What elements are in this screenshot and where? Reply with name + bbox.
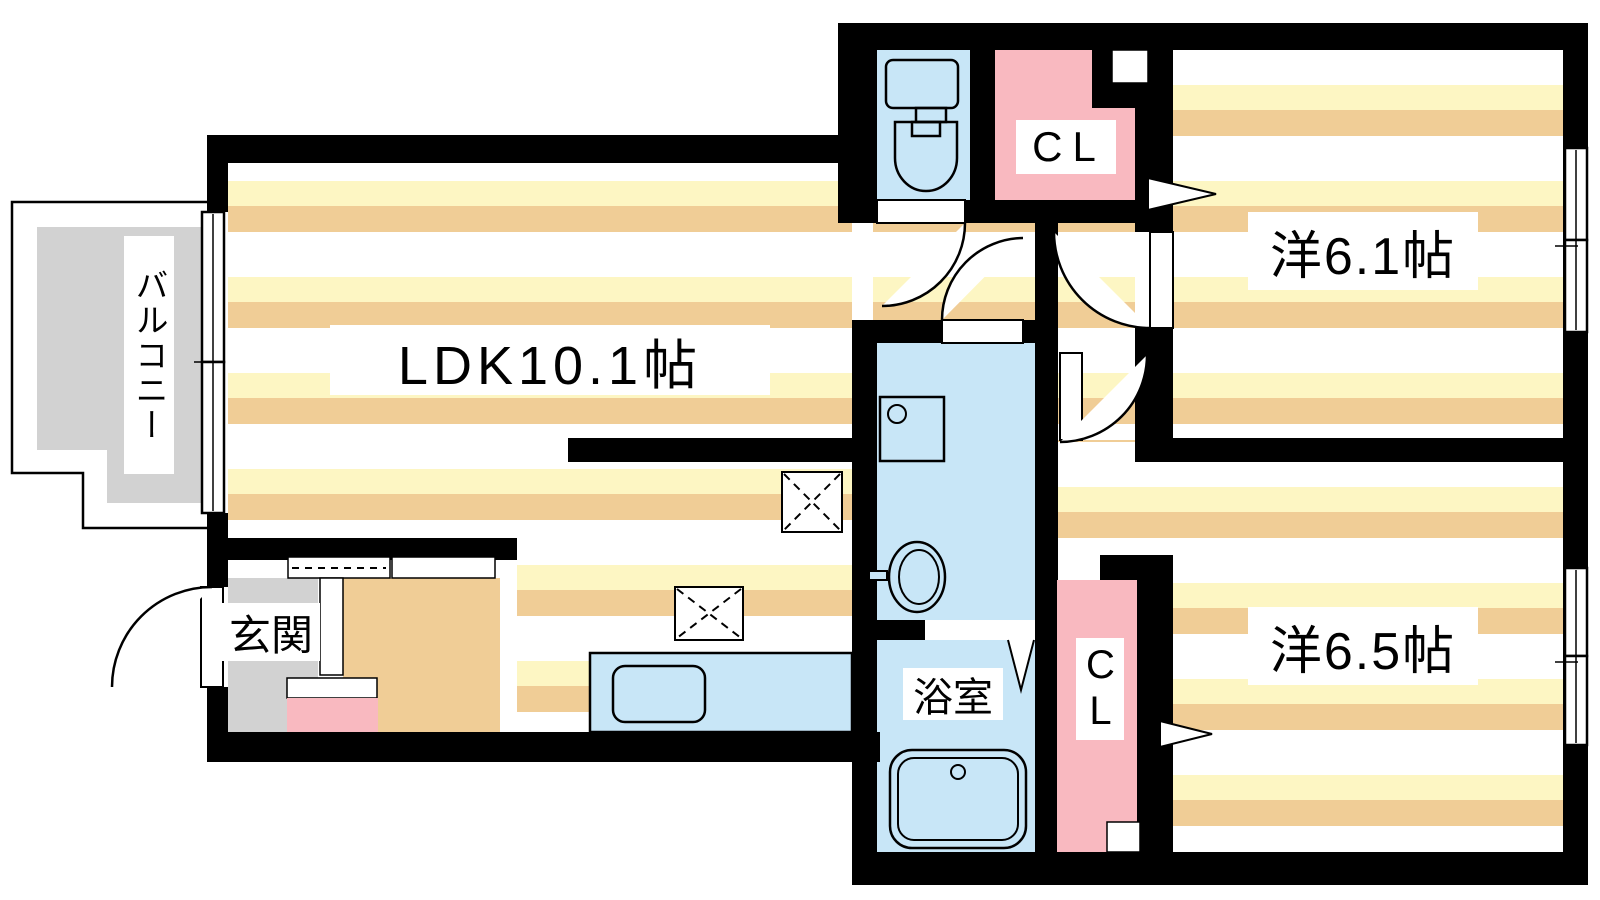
room-label-bath: 浴室: [903, 668, 1003, 720]
wall: [207, 135, 228, 212]
sliding-window-icon: [194, 212, 224, 513]
wall: [1100, 555, 1173, 580]
wall: [207, 732, 880, 762]
wall: [568, 438, 873, 462]
wall: [970, 48, 995, 200]
wall: [838, 23, 1588, 50]
wall: [852, 320, 877, 732]
wall: [1135, 438, 1588, 462]
room-label-entrance: 玄関: [222, 603, 320, 661]
entrance-hall-floor: [343, 578, 500, 732]
wall: [1035, 580, 1057, 855]
room-label-western-1: 洋6.1帖: [1248, 212, 1478, 290]
room-label-balcony: バルコニー: [124, 236, 174, 474]
room-label-closet-lower: CL: [1076, 638, 1124, 740]
wall: [965, 200, 1135, 223]
washroom-floor: [877, 343, 1035, 620]
wall: [873, 320, 942, 343]
wall: [1135, 328, 1173, 438]
floor-ldk-kitchen: [517, 560, 852, 732]
entrance-cabinet-icon: [288, 557, 495, 578]
wall: [877, 620, 925, 640]
wall: [223, 538, 517, 560]
wall: [852, 163, 873, 223]
balcony-outline: [12, 202, 207, 528]
wall: [1137, 580, 1173, 852]
room-label-closet-upper: CL: [1016, 120, 1116, 174]
wall: [1135, 23, 1173, 232]
floor-hallway: [873, 223, 1135, 320]
door-swing-icon: [112, 587, 223, 687]
floorplan: LDK10.1帖 洋6.1帖 洋6.5帖 浴室 玄関 CL CL バルコニー: [0, 0, 1600, 900]
wall: [852, 852, 1588, 885]
wall: [1035, 223, 1058, 580]
balcony-area: [37, 227, 203, 503]
wall: [1023, 320, 1035, 343]
room-label-western-2: 洋6.5帖: [1248, 607, 1478, 685]
toilet-room-floor: [877, 48, 970, 200]
entrance-step: [320, 578, 343, 675]
room-label-ldk: LDK10.1帖: [330, 325, 770, 395]
wall: [207, 135, 852, 163]
floor-hallway-lower: [1058, 320, 1135, 440]
